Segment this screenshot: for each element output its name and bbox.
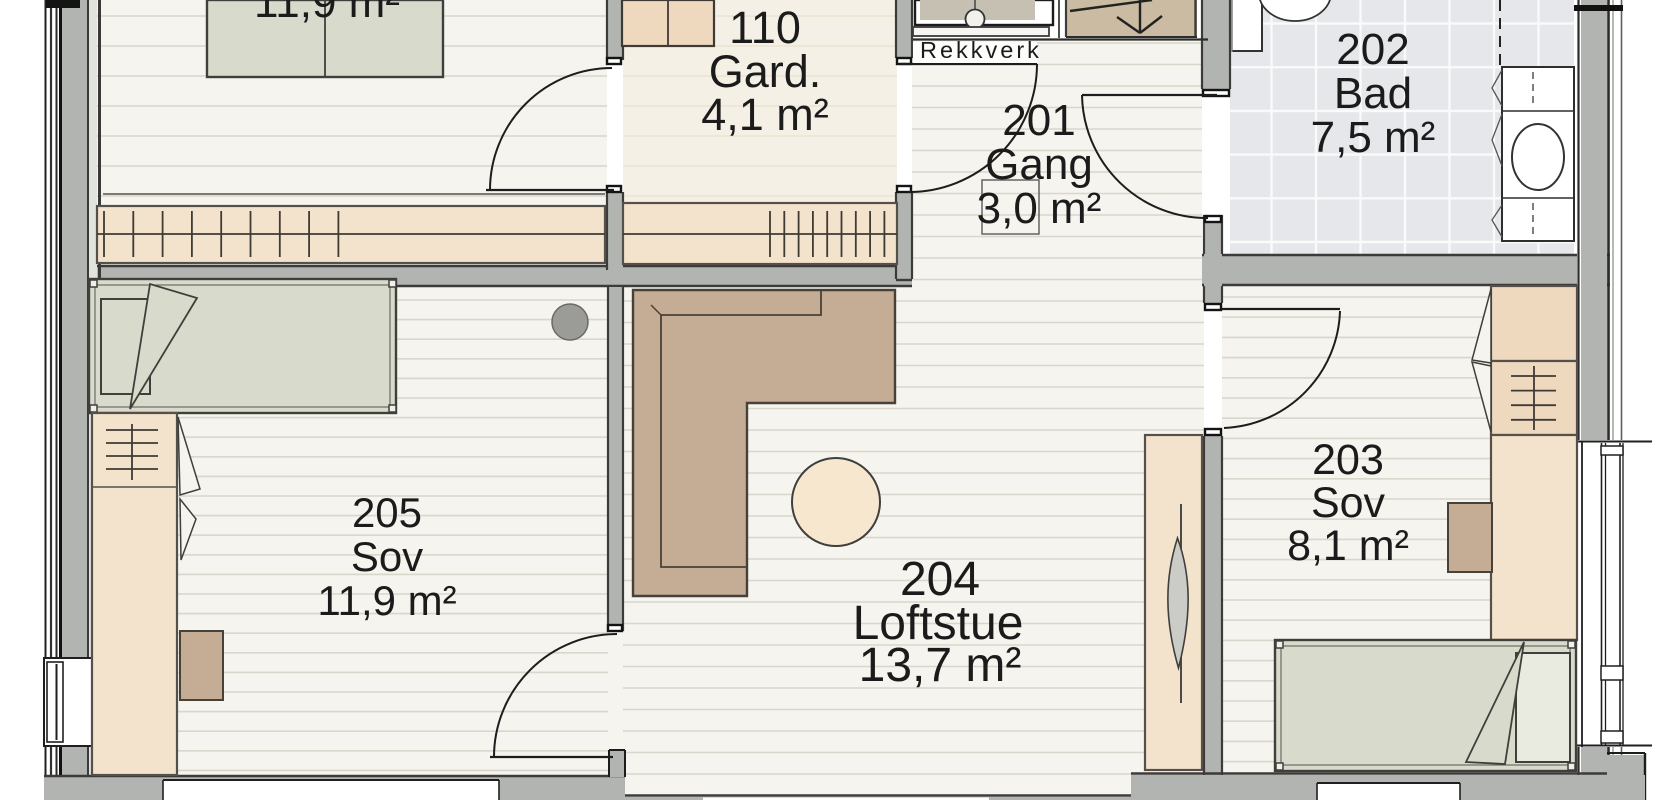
svg-text:202: 202: [1336, 25, 1409, 74]
svg-text:13,7 m²: 13,7 m²: [859, 639, 1022, 692]
svg-text:Sov: Sov: [351, 533, 423, 580]
svg-text:11,9 m²: 11,9 m²: [317, 577, 456, 624]
svg-text:Rekkverk: Rekkverk: [920, 37, 1042, 63]
svg-text:Gang: Gang: [985, 140, 1093, 189]
svg-text:203: 203: [1312, 436, 1384, 484]
svg-text:7,5 m²: 7,5 m²: [1311, 113, 1436, 162]
svg-text:201: 201: [1002, 96, 1075, 145]
svg-text:Sov: Sov: [1311, 479, 1386, 527]
svg-text:8,1 m²: 8,1 m²: [1287, 522, 1409, 570]
svg-text:3,0 m²: 3,0 m²: [977, 184, 1102, 233]
svg-text:205: 205: [352, 489, 422, 536]
svg-text:Bad: Bad: [1334, 69, 1412, 118]
svg-text:4,1 m²: 4,1 m²: [701, 89, 829, 140]
svg-text:11,9 m²: 11,9 m²: [254, 0, 400, 27]
